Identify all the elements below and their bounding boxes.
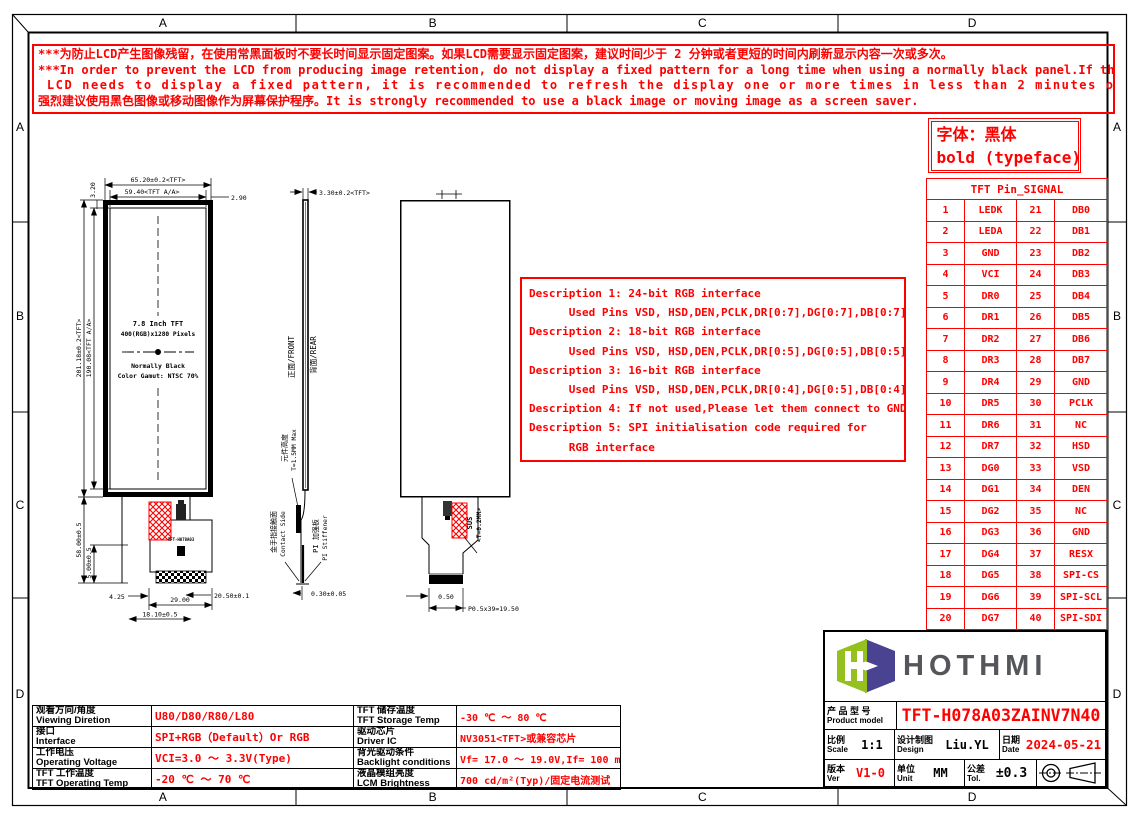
spec-value: SPI+RGB（Default）Or RGB [152, 727, 354, 748]
spec-row: 驱动芯片 Driver IC NV3051<TFT>或兼容芯片 [354, 727, 621, 748]
pin-table-row: 19 DG6 39 SPI-SCL [927, 587, 1108, 609]
pin-signal: GND [1055, 522, 1108, 544]
pin-signal: GND [1055, 372, 1108, 394]
description-line: Used Pins VSD, HSD,DEN,PCLK,DR[0:4],DG[0… [529, 380, 897, 399]
pin-signal: SPI-SDI [1055, 608, 1108, 630]
zone-letter: D [837, 14, 1107, 32]
scale-value: 1:1 [850, 738, 894, 752]
pin-signal: NC [1055, 501, 1108, 523]
pin-number: 31 [1017, 415, 1055, 437]
pin-number: 7 [927, 329, 965, 351]
zone-letter: C [568, 14, 838, 32]
image-retention-warning: ***为防止LCD产生图像残留，在使用常黑面板时不要长时间显示固定图案。如果LC… [32, 44, 1115, 114]
dim-1810: 18.10±0.5 [142, 611, 177, 619]
dim-top-left: 3.20 [89, 182, 97, 198]
pin-number: 11 [927, 415, 965, 437]
pin-table-row: 16 DG3 36 GND [927, 522, 1108, 544]
interface-description-box: Description 1: 24-bit RGB interface Used… [520, 277, 906, 462]
zone-letter: C [568, 788, 838, 806]
spec-label-en: TFT Storage Temp [357, 716, 453, 726]
version-value: V1-0 [847, 766, 894, 780]
contact-side-label-cn: 金手指接触面 [269, 511, 278, 553]
pin-number: 4 [927, 264, 965, 286]
pin-signal: DG0 [965, 458, 1017, 480]
pin-number: 19 [927, 587, 965, 609]
dim-tail-height: 58.00±0.5 [75, 522, 83, 557]
pin-signal: DR1 [965, 307, 1017, 329]
zone-letters-bottom: ABCD [28, 788, 1107, 806]
pin-number: 13 [927, 458, 965, 480]
pin-signal: DB0 [1055, 200, 1108, 222]
spec-value: Vf= 17.0 ～ 19.0V,If= 100 mA [457, 748, 621, 769]
contact-side-label-en: Contact Side [280, 511, 287, 557]
zone-letter: A [28, 14, 298, 32]
spec-row: TFT 工作温度 TFT Operating Temp -20 ℃ ～ 70 ℃ [33, 769, 354, 790]
warning-line: ***In order to prevent the LCD from prod… [38, 63, 1109, 79]
pin-signal: DB3 [1055, 264, 1108, 286]
logo-icon [833, 635, 899, 697]
pin-table-row: 9 DR4 29 GND [927, 372, 1108, 394]
pin-signal: DR2 [965, 329, 1017, 351]
pin-signal: DB1 [1055, 221, 1108, 243]
design-value: Liu.YL [935, 738, 999, 752]
tolerance-label-en: Tol. [967, 774, 985, 783]
pin-signal: RESX [1055, 544, 1108, 566]
pin-number: 5 [927, 286, 965, 308]
spec-label-en: Backlight conditions [357, 758, 453, 768]
zone-letters-right: ABCD [1108, 32, 1126, 788]
spec-value: U80/D80/R80/L80 [152, 706, 354, 727]
spec-row: 背光驱动条件 Backlight conditions Vf= 17.0 ～ 1… [354, 748, 621, 769]
zone-letter: B [298, 788, 568, 806]
pin-table-row: 11 DR6 31 NC [927, 415, 1108, 437]
pin-number: 26 [1017, 307, 1055, 329]
pin-signal: DR6 [965, 415, 1017, 437]
pin-number: 38 [1017, 565, 1055, 587]
front-view: 7.8 Inch TFT 400(RGB)x1280 Pixels Normal… [75, 176, 249, 619]
typeface-note-line1: 字体：黑体 [937, 123, 1073, 146]
pin-signal: SPI-CS [1055, 565, 1108, 587]
pin-signal: DB4 [1055, 286, 1108, 308]
pin-signal-table: TFT Pin_SIGNAL 1 LEDK 21 DB0 2 LEDA 22 D… [926, 178, 1108, 630]
screen-res-label: 400(RGB)x1280 Pixels [121, 330, 196, 338]
pin-table-title: TFT Pin_SIGNAL [927, 179, 1108, 200]
fpc-part-label: TFT-H078A03 [168, 537, 195, 542]
pin-number: 6 [927, 307, 965, 329]
tolerance-value: ±0.3 [987, 766, 1036, 781]
dim-tail-offset: 5.00±0.5 [85, 547, 93, 578]
product-model-label-en: Product model [827, 716, 883, 725]
screen-size-label: 7.8 Inch TFT [133, 320, 184, 328]
pin-number: 30 [1017, 393, 1055, 415]
pin-signal: HSD [1055, 436, 1108, 458]
description-line: Used Pins VSD, HSD,DEN,PCLK,DR[0:5],DG[0… [529, 342, 897, 361]
dim-width-aa: 59.40<TFT A/A> [125, 188, 180, 196]
pin-signal: VCI [965, 264, 1017, 286]
pin-table-row: 13 DG0 33 VSD [927, 458, 1108, 480]
zone-letter: D [12, 599, 28, 788]
description-line: RGB interface [529, 438, 897, 457]
spec-row: 液晶模组亮度 LCM Brightness 700 cd/m²(Typ)/固定电… [354, 769, 621, 790]
pin-number: 17 [927, 544, 965, 566]
pin-number: 27 [1017, 329, 1055, 351]
pin-number: 40 [1017, 608, 1055, 630]
scale-label-cn: 比例 [827, 735, 848, 745]
warning-line: LCD needs to display a fixed pattern, it… [38, 78, 1109, 94]
design-label-en: Design [897, 745, 933, 754]
pin-number: 22 [1017, 221, 1055, 243]
spec-row: 工作电压 Operating Voltage VCI=3.0 ～ 3.3V(Ty… [33, 748, 354, 769]
pin-signal: DB5 [1055, 307, 1108, 329]
pin-signal: DB6 [1055, 329, 1108, 351]
dim-thickness: 3.30±0.2<TFT> [319, 189, 370, 197]
scale-label-en: Scale [827, 745, 848, 754]
pin-table-row: 4 VCI 24 DB3 [927, 264, 1108, 286]
pin-number: 28 [1017, 350, 1055, 372]
projection-symbol-icon [1039, 760, 1103, 786]
description-line: Description 5: SPI initialisation code r… [529, 418, 897, 437]
pin-signal: NC [1055, 415, 1108, 437]
pin-signal: DG6 [965, 587, 1017, 609]
component-height-label-en: T=1.5MM Max [291, 429, 298, 471]
zone-letter: B [1108, 221, 1126, 410]
spec-row: 接口 Interface SPI+RGB（Default）Or RGB [33, 727, 354, 748]
description-line: Description 3: 16-bit RGB interface [529, 361, 897, 380]
product-model-label-cn: 产 品 型 号 [827, 706, 883, 716]
unit-value: MM [917, 766, 964, 780]
dim-030: 0.30±0.05 [311, 590, 346, 598]
pin-number: 23 [1017, 243, 1055, 265]
zone-letters-top: ABCD [28, 14, 1107, 32]
pin-signal: PCLK [1055, 393, 1108, 415]
stiffener-label-cn: PI 加强板 [311, 519, 320, 553]
pin-signal: DR3 [965, 350, 1017, 372]
pin-signal: DB2 [1055, 243, 1108, 265]
logo-text: HOTHMI [903, 650, 1047, 683]
pin-number: 39 [1017, 587, 1055, 609]
warning-line: 强烈建议使用黑色图像或移动图像作为屏幕保护程序。It is strongly r… [38, 94, 1109, 110]
pin-number: 15 [927, 501, 965, 523]
pin-signal: DG3 [965, 522, 1017, 544]
pin-signal: LEDK [965, 200, 1017, 222]
pin-number: 20 [927, 608, 965, 630]
pin-signal: DR5 [965, 393, 1017, 415]
pin-signal: DR4 [965, 372, 1017, 394]
zone-letter: C [1108, 410, 1126, 599]
spec-value: -20 ℃ ～ 70 ℃ [152, 769, 354, 790]
pin-number: 32 [1017, 436, 1055, 458]
spec-value: VCI=3.0 ～ 3.3V(Type) [152, 748, 354, 769]
pin-number: 8 [927, 350, 965, 372]
spec-row: 观看方向/角度 Viewing Diretion U80/D80/R80/L80 [33, 706, 354, 727]
pin-number: 1 [927, 200, 965, 222]
description-line: Description 4: If not used,Please let th… [529, 399, 897, 418]
dim-425: 4.25 [109, 593, 125, 601]
pin-table-row: 12 DR7 32 HSD [927, 436, 1108, 458]
pin-table-row: 7 DR2 27 DB6 [927, 329, 1108, 351]
pin-number: 10 [927, 393, 965, 415]
pin-number: 37 [1017, 544, 1055, 566]
sus-thickness-label: <T=0.2MM> [476, 508, 483, 542]
typeface-note-line2: bold (typeface) [937, 146, 1073, 169]
zone-letter: D [1108, 599, 1126, 788]
spec-label-en: LCM Brightness [357, 779, 453, 789]
zone-letter: A [28, 788, 298, 806]
dim-right: 2.90 [231, 194, 247, 202]
dim-2050: 20.50±0.1 [214, 592, 249, 600]
pin-signal: DR0 [965, 286, 1017, 308]
typeface-note: 字体：黑体 bold (typeface) [928, 118, 1081, 173]
spec-label-en: Interface [36, 737, 148, 747]
pin-table-row: 5 DR0 25 DB4 [927, 286, 1108, 308]
warning-line: ***为防止LCD产生图像残留，在使用常黑面板时不要长时间显示固定图案。如果LC… [38, 47, 1109, 63]
pin-table-row: 18 DG5 38 SPI-CS [927, 565, 1108, 587]
stiffener-label-en: PI Stiffener [322, 515, 329, 561]
pin-signal: VSD [1055, 458, 1108, 480]
date-label-en: Date [1002, 745, 1020, 754]
pin-table-row: 20 DG7 40 SPI-SDI [927, 608, 1108, 630]
date-value: 2024-05-21 [1022, 737, 1105, 752]
unit-label-en: Unit [897, 774, 915, 783]
spec-table-left: 观看方向/角度 Viewing Diretion U80/D80/R80/L80… [32, 705, 354, 790]
tolerance-label-cn: 公差 [967, 764, 985, 774]
component-height-label-cn: 元件高度 [280, 434, 289, 462]
spec-table-right: TFT 储存温度 TFT Storage Temp -30 ℃ ～ 80 ℃ 驱… [353, 705, 621, 790]
spec-label-en: TFT Operating Temp [36, 779, 148, 789]
side-view: 3.30±0.2<TFT> 正面/FRONT 背面/REAR 元件高度 T=1.… [269, 188, 370, 600]
spec-value: 700 cd/m²(Typ)/固定电流测试 [457, 769, 621, 790]
description-line: Used Pins VSD, HSD,DEN,PCLK,DR[0:7],DG[0… [529, 303, 897, 322]
pin-signal: DR7 [965, 436, 1017, 458]
design-label-cn: 设计制图 [897, 735, 933, 745]
pin-signal: DG2 [965, 501, 1017, 523]
unit-label-cn: 单位 [897, 764, 915, 774]
pin-number: 9 [927, 372, 965, 394]
pin-signal: LEDA [965, 221, 1017, 243]
sus-label: SUS [466, 517, 474, 530]
dim-050: 0.50 [438, 593, 454, 601]
product-model-value: TFT-H078A03ZAINV7N40 [897, 706, 1105, 725]
title-block: HOTHMI 产 品 型 号 Product model TFT-H078A03… [823, 630, 1107, 788]
pin-number: 36 [1017, 522, 1055, 544]
pin-signal: GND [965, 243, 1017, 265]
front-face-label: 正面/FRONT [287, 335, 296, 378]
dim-height: 201.18±0.2<TFT> [75, 319, 83, 378]
spec-label-en: Viewing Diretion [36, 716, 148, 726]
pin-number: 33 [1017, 458, 1055, 480]
zone-letter: C [12, 410, 28, 599]
description-line: Description 2: 18-bit RGB interface [529, 322, 897, 341]
pin-signal: DG4 [965, 544, 1017, 566]
hothmi-logo: HOTHMI [825, 632, 1105, 702]
pin-table-row: 17 DG4 37 RESX [927, 544, 1108, 566]
zone-letter: B [298, 14, 568, 32]
pin-signal: DEN [1055, 479, 1108, 501]
spec-row: TFT 储存温度 TFT Storage Temp -30 ℃ ～ 80 ℃ [354, 706, 621, 727]
pin-signal: SPI-SCL [1055, 587, 1108, 609]
pin-table-row: 3 GND 23 DB2 [927, 243, 1108, 265]
spec-label-en: Operating Voltage [36, 758, 148, 768]
pin-number: 34 [1017, 479, 1055, 501]
pin-number: 3 [927, 243, 965, 265]
drawing-sheet: 7.8 Inch TFT 400(RGB)x1280 Pixels Normal… [0, 0, 1139, 817]
version-label-en: Ver [827, 774, 845, 783]
pin-number: 2 [927, 221, 965, 243]
pin-signal: DG7 [965, 608, 1017, 630]
pin-number: 25 [1017, 286, 1055, 308]
pin-table-row: 15 DG2 35 NC [927, 501, 1108, 523]
dim-width: 65.20±0.2<TFT> [131, 176, 186, 184]
date-label-cn: 日期 [1002, 735, 1020, 745]
pin-number: 24 [1017, 264, 1055, 286]
dim-pitch: P0.5x39=19.50 [468, 605, 519, 613]
screen-gamut-label: Color Gamut: NTSC 70% [118, 372, 199, 380]
spec-value: -30 ℃ ～ 80 ℃ [457, 706, 621, 727]
zone-letter: D [837, 788, 1107, 806]
pin-table-row: 2 LEDA 22 DB1 [927, 221, 1108, 243]
pin-signal: DB7 [1055, 350, 1108, 372]
screen-mode-label: Normally Black [131, 362, 185, 370]
pin-table-row: 10 DR5 30 PCLK [927, 393, 1108, 415]
pin-table-row: 1 LEDK 21 DB0 [927, 200, 1108, 222]
zone-letter: A [12, 32, 28, 221]
spec-value: NV3051<TFT>或兼容芯片 [457, 727, 621, 748]
version-label-cn: 版本 [827, 764, 845, 774]
pin-number: 35 [1017, 501, 1055, 523]
pin-number: 18 [927, 565, 965, 587]
pin-table-row: 8 DR3 28 DB7 [927, 350, 1108, 372]
rear-view: SUS <T=0.2MM> 0.50 P0.5x39=19.50 [401, 190, 519, 613]
pin-number: 12 [927, 436, 965, 458]
pin-number: 14 [927, 479, 965, 501]
pin-signal: DG5 [965, 565, 1017, 587]
description-line: Description 1: 24-bit RGB interface [529, 284, 897, 303]
pin-signal: DG1 [965, 479, 1017, 501]
pin-number: 21 [1017, 200, 1055, 222]
dim-height-aa: 190.08<TFT A/A> [85, 319, 93, 378]
pin-table-row: 14 DG1 34 DEN [927, 479, 1108, 501]
pin-table-row: 6 DR1 26 DB5 [927, 307, 1108, 329]
zone-letters-left: ABCD [12, 32, 28, 788]
spec-label-en: Driver IC [357, 737, 453, 747]
zone-letter: B [12, 221, 28, 410]
rear-face-label: 背面/REAR [308, 336, 318, 374]
pin-number: 16 [927, 522, 965, 544]
pin-number: 29 [1017, 372, 1055, 394]
dim-2900: 29.00 [170, 596, 190, 604]
